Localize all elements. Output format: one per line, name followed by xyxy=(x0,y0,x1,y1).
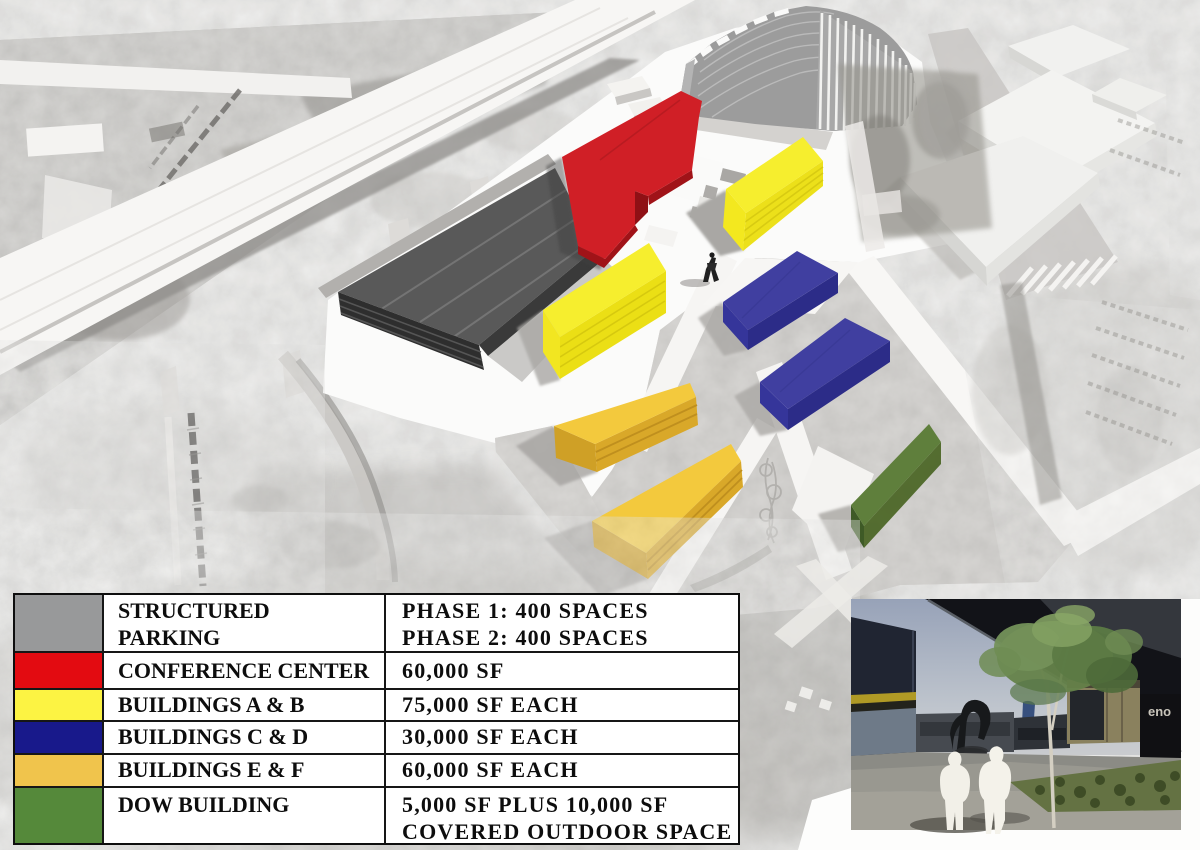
svg-text:eno: eno xyxy=(1148,704,1171,719)
